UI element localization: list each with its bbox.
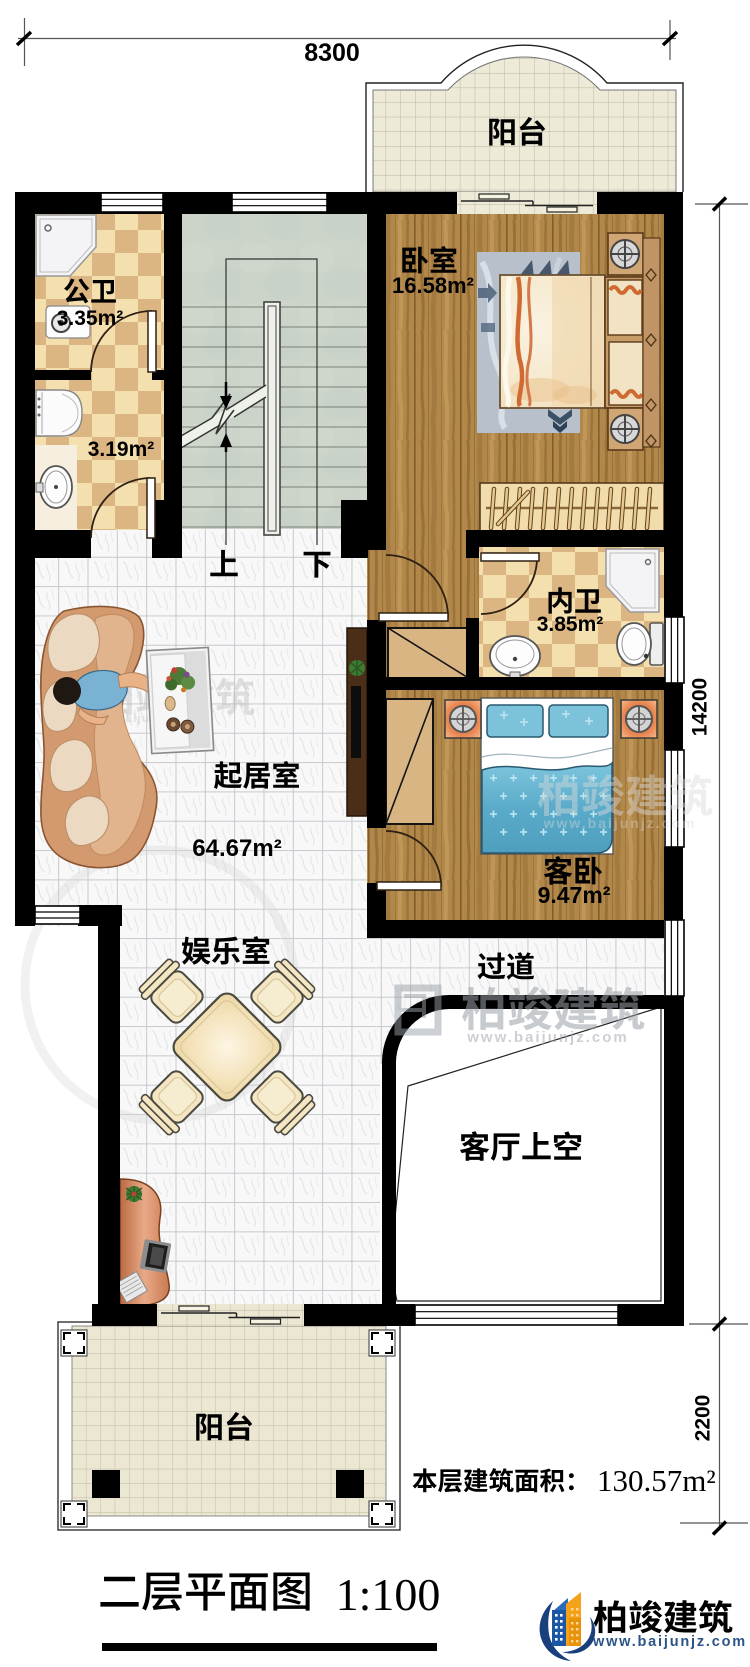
svg-text:8300: 8300 (304, 39, 360, 67)
svg-text:14200: 14200 (689, 678, 712, 736)
svg-text:www.baijunjz.com: www.baijunjz.com (466, 1029, 628, 1046)
svg-text:130.57m²: 130.57m² (597, 1463, 716, 1498)
svg-text:9.47m²: 9.47m² (538, 882, 611, 908)
svg-text:3.19m²: 3.19m² (88, 438, 155, 461)
svg-text:2200: 2200 (692, 1395, 715, 1442)
svg-text:www.baijunjz.com: www.baijunjz.com (592, 1634, 747, 1650)
svg-text:16.58m²: 16.58m² (392, 273, 474, 298)
svg-text:64.67m²: 64.67m² (192, 835, 281, 862)
svg-text:1:100: 1:100 (336, 1569, 441, 1620)
svg-text:www.baijunjz.com: www.baijunjz.com (543, 815, 697, 831)
svg-text:3.85m²: 3.85m² (537, 613, 604, 636)
svg-text:3.35m²: 3.35m² (57, 307, 124, 330)
